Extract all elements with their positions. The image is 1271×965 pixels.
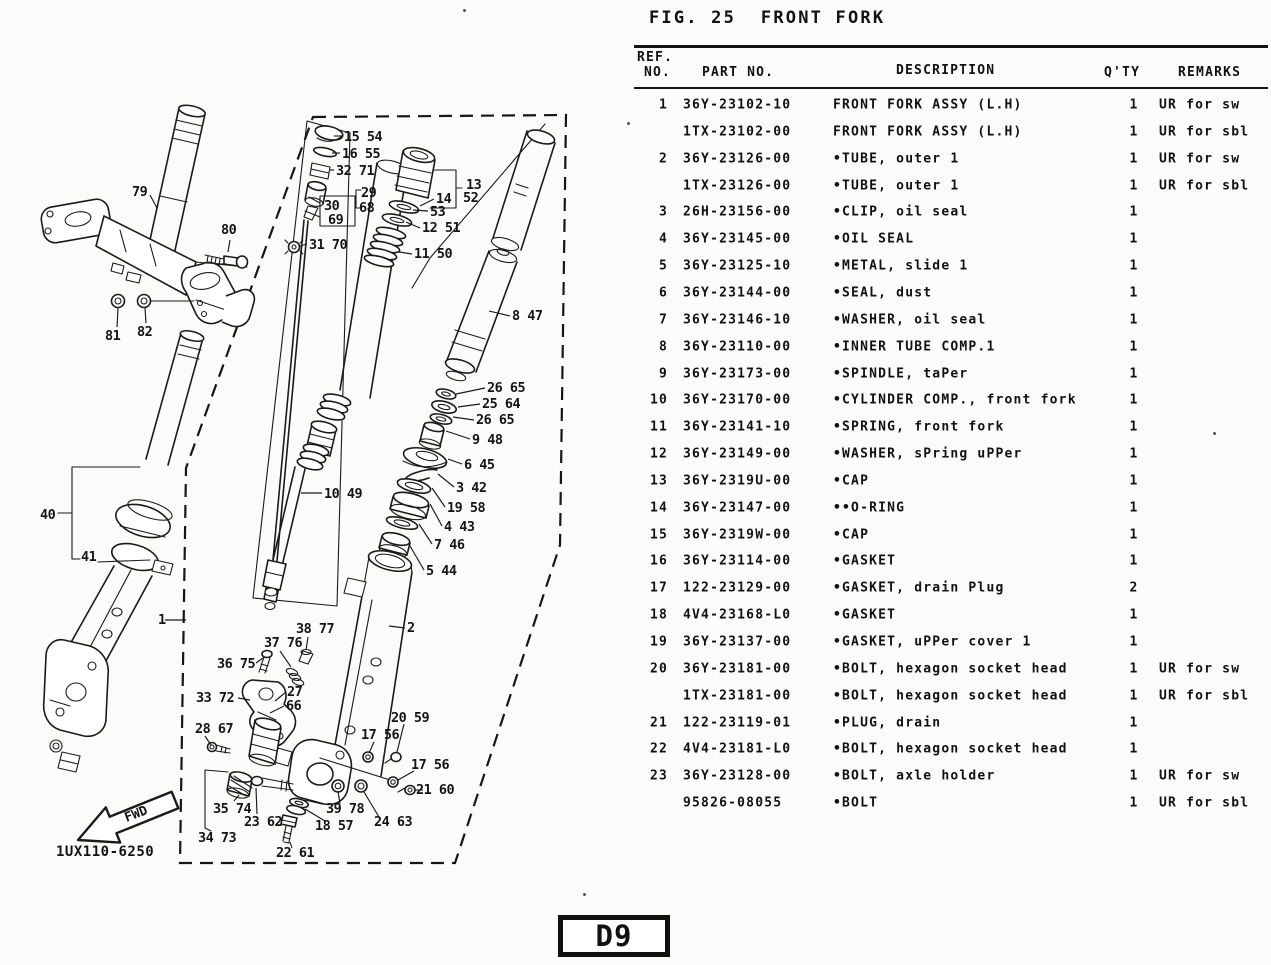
- part-callout-label: 24 63: [374, 814, 413, 830]
- parts-catalog-page: FWD 1UX110-6250 7980818215 5416 5532 712…: [0, 0, 1271, 965]
- part-callout-label: 40: [40, 507, 56, 523]
- part-no-cell: 122-23119-01: [683, 715, 791, 730]
- description-cell: •WASHER, oil seal: [833, 312, 986, 327]
- table-row: 736Y-23146-10•WASHER, oil seal1: [635, 306, 1268, 333]
- description-cell: •TUBE, outer 1: [833, 178, 959, 193]
- ref-no-cell: 7: [640, 312, 668, 327]
- part-no-cell: 95826-08055: [683, 796, 782, 811]
- description-cell: •BOLT: [833, 796, 878, 811]
- part-callout-label: 19 58: [447, 500, 486, 516]
- qty-cell: 1: [1124, 151, 1144, 166]
- part-callout-label: 32 71: [336, 163, 375, 179]
- callout-leader-line: [280, 651, 291, 667]
- scan-speck: [627, 122, 630, 125]
- callout-leader-line: [145, 308, 146, 323]
- table-row: 326H-23156-00•CLIP, oil seal1: [635, 199, 1268, 226]
- exploded-diagram: FWD 1UX110-6250 7980818215 5416 5532 712…: [0, 0, 640, 965]
- header-description: DESCRIPTION: [896, 63, 995, 78]
- ref-no-cell: 3: [640, 205, 668, 220]
- part-callout-label: 5 44: [426, 563, 457, 579]
- part-no-cell: 36Y-23145-00: [683, 232, 791, 247]
- callout-leader-line: [438, 474, 454, 487]
- table-row: 436Y-23145-00•OIL SEAL1: [635, 226, 1268, 253]
- description-cell: •GASKET, drain Plug: [833, 581, 1005, 596]
- qty-cell: 1: [1124, 312, 1144, 327]
- part-callout-label: 28 67: [195, 721, 234, 737]
- table-row: 536Y-23125-10•METAL, slide 11: [635, 253, 1268, 280]
- dashed-boundary: [180, 115, 566, 863]
- qty-cell: 1: [1124, 178, 1144, 193]
- description-cell: FRONT FORK ASSY (L.H): [833, 98, 1023, 113]
- part-no-cell: 36Y-23170-00: [683, 393, 791, 408]
- description-cell: •INNER TUBE COMP.1: [833, 339, 995, 354]
- ref-no-cell: 2: [640, 151, 668, 166]
- callout-leader-line: [489, 311, 510, 316]
- ref-no-cell: 21: [640, 715, 668, 730]
- qty-cell: 1: [1124, 796, 1144, 811]
- table-row: 1936Y-23137-00•GASKET, uPPer cover 11: [635, 629, 1268, 656]
- qty-cell: 1: [1124, 715, 1144, 730]
- qty-cell: 1: [1124, 527, 1144, 542]
- part-callout-label: 25 64: [482, 396, 521, 412]
- part-no-cell: 36Y-23114-00: [683, 554, 791, 569]
- header-ref-line2: NO.: [644, 65, 671, 80]
- part-callout-label: 10 49: [324, 486, 363, 502]
- part-callout-label: 31 70: [309, 237, 348, 253]
- part-callout-label: 2: [407, 620, 415, 636]
- table-row: 95826-08055•BOLT1UR for sbl: [635, 790, 1268, 817]
- callout-leader-line: [228, 240, 230, 252]
- scan-speck: [463, 9, 466, 12]
- part-callout-label: 34 73: [198, 830, 237, 846]
- callout-leader-line: [446, 431, 470, 439]
- part-no-cell: 36Y-23102-10: [683, 98, 791, 113]
- table-row: 1036Y-23170-00•CYLINDER COMP., front for…: [635, 387, 1268, 414]
- part-no-cell: 36Y-23128-00: [683, 769, 791, 784]
- part-no-cell: 36Y-23125-10: [683, 259, 791, 274]
- ref-no-cell: 1: [640, 98, 668, 113]
- ref-no-cell: 23: [640, 769, 668, 784]
- qty-cell: 1: [1124, 635, 1144, 650]
- page-code-box: D9: [558, 915, 670, 957]
- part-callout-label: 8 47: [512, 308, 543, 324]
- header-qty: Q'TY: [1104, 65, 1140, 80]
- ref-no-cell: 16: [640, 554, 668, 569]
- part-callout-label: 18 57: [315, 818, 354, 834]
- qty-cell: 1: [1124, 420, 1144, 435]
- qty-cell: 1: [1124, 661, 1144, 676]
- part-callout-label: 6 45: [464, 457, 495, 473]
- remarks-cell: UR for sw: [1159, 661, 1240, 676]
- table-row: 136Y-23102-10FRONT FORK ASSY (L.H)1UR fo…: [635, 92, 1268, 119]
- part-no-cell: 4V4-23168-L0: [683, 608, 791, 623]
- table-row: 236Y-23126-00•TUBE, outer 11UR for sw: [635, 145, 1268, 172]
- remarks-cell: UR for sw: [1159, 98, 1240, 113]
- ref-no-cell: 18: [640, 608, 668, 623]
- fwd-arrow: FWD: [78, 792, 178, 843]
- qty-cell: 1: [1124, 500, 1144, 515]
- callout-leader-line: [453, 417, 474, 420]
- part-callout-label: 7 46: [434, 537, 465, 553]
- part-callout-label: 35 74: [213, 801, 252, 817]
- part-callout-label: 68: [359, 200, 375, 216]
- description-cell: •TUBE, outer 1: [833, 151, 959, 166]
- ref-no-cell: 22: [640, 742, 668, 757]
- qty-cell: 1: [1124, 447, 1144, 462]
- callout-leader-line: [150, 195, 157, 208]
- part-no-cell: 1TX-23181-00: [683, 688, 791, 703]
- part-callout-label: 3 42: [456, 480, 487, 496]
- ref-no-cell: 17: [640, 581, 668, 596]
- description-cell: •SEAL, dust: [833, 285, 932, 300]
- table-row: 21122-23119-01•PLUG, drain1: [635, 709, 1268, 736]
- callout-leader-line: [369, 742, 374, 753]
- table-row: 224V4-23181-L0•BOLT, hexagon socket head…: [635, 736, 1268, 763]
- description-cell: •SPINDLE, taPer: [833, 366, 968, 381]
- table-row: 2336Y-23128-00•BOLT, axle holder1UR for …: [635, 763, 1268, 790]
- part-no-cell: 26H-23156-00: [683, 205, 791, 220]
- callout-leader-line: [399, 252, 412, 254]
- part-no-cell: 1TX-23126-00: [683, 178, 791, 193]
- part-callout-label: 17 56: [361, 727, 400, 743]
- description-cell: •GASKET: [833, 554, 896, 569]
- qty-cell: 1: [1124, 473, 1144, 488]
- qty-cell: 1: [1124, 554, 1144, 569]
- table-top-rule: [634, 45, 1268, 48]
- callout-leader-line: [256, 788, 257, 814]
- ref-no-cell: 8: [640, 339, 668, 354]
- scan-speck: [1213, 432, 1216, 435]
- part-callout-label: 29: [361, 185, 377, 201]
- description-cell: •METAL, slide 1: [833, 259, 968, 274]
- remarks-cell: UR for sbl: [1159, 796, 1249, 811]
- qty-cell: 1: [1124, 285, 1144, 300]
- qty-cell: 1: [1124, 393, 1144, 408]
- part-callout-label: 4 43: [444, 519, 475, 535]
- ref-no-cell: 6: [640, 285, 668, 300]
- ref-no-cell: 14: [640, 500, 668, 515]
- table-row: 1236Y-23149-00•WASHER, sPring uPPer1: [635, 441, 1268, 468]
- part-callout-label: 52: [463, 190, 478, 206]
- part-no-cell: 36Y-23137-00: [683, 635, 791, 650]
- description-cell: ••O-RING: [833, 500, 905, 515]
- callout-leader-line: [306, 637, 308, 650]
- ref-no-cell: 13: [640, 473, 668, 488]
- header-part-no: PART NO.: [702, 65, 774, 80]
- part-callout-label: 21 60: [416, 782, 455, 798]
- description-cell: •CAP: [833, 473, 869, 488]
- table-row: 936Y-23173-00•SPINDLE, taPer1: [635, 360, 1268, 387]
- part-no-cell: 4V4-23181-L0: [683, 742, 791, 757]
- table-row: 184V4-23168-L0•GASKET1: [635, 602, 1268, 629]
- part-callout-label: 22 61: [276, 845, 315, 861]
- table-row: 1TX-23102-00FRONT FORK ASSY (L.H)1UR for…: [635, 118, 1268, 145]
- table-row: 836Y-23110-00•INNER TUBE COMP.11: [635, 333, 1268, 360]
- table-row: 1436Y-23147-00••O-RING1: [635, 494, 1268, 521]
- damper-rod-parts: [264, 124, 344, 610]
- remarks-cell: UR for sw: [1159, 769, 1240, 784]
- ref-no-cell: 19: [640, 635, 668, 650]
- part-no-cell: 36Y-2319U-00: [683, 473, 791, 488]
- part-callout-label: 16 55: [342, 146, 381, 162]
- part-callout-label: 39 78: [326, 801, 365, 817]
- qty-cell: 1: [1124, 366, 1144, 381]
- ref-no-cell: 5: [640, 259, 668, 274]
- description-cell: •OIL SEAL: [833, 232, 914, 247]
- qty-cell: 1: [1124, 259, 1144, 274]
- description-cell: •GASKET, uPPer cover 1: [833, 635, 1032, 650]
- part-callout-label: 37 76: [264, 635, 303, 651]
- callout-leader-line: [448, 459, 462, 464]
- part-no-cell: 36Y-23141-10: [683, 420, 791, 435]
- ref-no-cell: 10: [640, 393, 668, 408]
- part-callout-label: 33 72: [196, 690, 234, 706]
- part-no-cell: 36Y-23173-00: [683, 366, 791, 381]
- part-callout-label: 1: [158, 612, 166, 628]
- header-remarks: REMARKS: [1178, 65, 1241, 80]
- qty-cell: 1: [1124, 742, 1144, 757]
- description-cell: •BOLT, axle holder: [833, 769, 995, 784]
- callout-leader-line: [456, 388, 485, 394]
- part-no-cell: 36Y-23181-00: [683, 661, 791, 676]
- left-fork-leg: [44, 329, 205, 772]
- description-cell: •CAP: [833, 527, 869, 542]
- diagram-code: 1UX110-6250: [56, 844, 154, 860]
- description-cell: •BOLT, hexagon socket head: [833, 688, 1068, 703]
- ref-no-cell: 12: [640, 447, 668, 462]
- part-callout-label: 9 48: [472, 432, 503, 448]
- qty-cell: 1: [1124, 608, 1144, 623]
- table-row: 1636Y-23114-00•GASKET1: [635, 548, 1268, 575]
- part-callout-label: 17 56: [411, 757, 450, 773]
- qty-cell: 1: [1124, 688, 1144, 703]
- table-row: 1536Y-2319W-00•CAP1: [635, 521, 1268, 548]
- qty-cell: 1: [1124, 98, 1144, 113]
- inner-tube: [444, 127, 556, 382]
- callout-leader-line: [430, 504, 442, 526]
- scan-speck: [583, 893, 586, 896]
- description-cell: •BOLT, hexagon socket head: [833, 742, 1068, 757]
- header-ref-line1: REF.: [637, 50, 673, 65]
- part-callout-label: 79: [132, 184, 148, 200]
- part-callout-label: 26 65: [476, 412, 515, 428]
- figure-title: FIG. 25 FRONT FORK: [649, 8, 885, 28]
- part-no-cell: 36Y-23126-00: [683, 151, 791, 166]
- table-row: 1136Y-23141-10•SPRING, front fork1: [635, 414, 1268, 441]
- page-code: D9: [596, 922, 633, 951]
- callout-leader-line: [432, 488, 445, 507]
- callout-leader-line: [419, 524, 432, 544]
- part-callout-label: 20 59: [391, 710, 430, 726]
- callout-leader-line: [389, 626, 405, 628]
- remarks-cell: UR for sbl: [1159, 124, 1249, 139]
- ref-no-cell: 11: [640, 420, 668, 435]
- part-no-cell: 36Y-23144-00: [683, 285, 791, 300]
- part-no-cell: 122-23129-00: [683, 581, 791, 596]
- remarks-cell: UR for sbl: [1159, 688, 1249, 703]
- steering-stem-assembly: [39, 103, 254, 326]
- inner-frame: [253, 121, 350, 606]
- description-cell: FRONT FORK ASSY (L.H): [833, 124, 1023, 139]
- part-callout-label: 11 50: [414, 246, 453, 262]
- remarks-cell: UR for sw: [1159, 151, 1240, 166]
- table-row: 636Y-23144-00•SEAL, dust1: [635, 279, 1268, 306]
- description-cell: •WASHER, sPring uPPer: [833, 447, 1023, 462]
- part-callout-label: 53: [430, 204, 446, 220]
- description-cell: •CYLINDER COMP., front fork: [833, 393, 1077, 408]
- part-no-cell: 1TX-23102-00: [683, 124, 791, 139]
- description-cell: •PLUG, drain: [833, 715, 941, 730]
- table-row: 1TX-23126-00•TUBE, outer 11UR for sbl: [635, 172, 1268, 199]
- part-callout-label: 80: [221, 222, 237, 238]
- part-callout-label: 26 65: [487, 380, 526, 396]
- part-callout-label: 69: [328, 212, 344, 228]
- part-callout-label: 15 54: [344, 129, 383, 145]
- part-no-cell: 36Y-23149-00: [683, 447, 791, 462]
- description-cell: •SPRING, front fork: [833, 420, 1005, 435]
- callout-leader-line: [117, 308, 118, 327]
- table-row: 17122-23129-00•GASKET, drain Plug2: [635, 575, 1268, 602]
- part-no-cell: 36Y-2319W-00: [683, 527, 791, 542]
- part-no-cell: 36Y-23146-10: [683, 312, 791, 327]
- qty-cell: 1: [1124, 769, 1144, 784]
- description-cell: •BOLT, hexagon socket head: [833, 661, 1068, 676]
- part-callout-label: 81: [105, 328, 121, 344]
- table-header-rule: [634, 87, 1268, 89]
- qty-cell: 1: [1124, 339, 1144, 354]
- callout-leader-line: [458, 404, 480, 407]
- table-row: 1TX-23181-00•BOLT, hexagon socket head1U…: [635, 682, 1268, 709]
- part-callout-label: 82: [137, 324, 152, 340]
- part-no-cell: 36Y-23147-00: [683, 500, 791, 515]
- qty-cell: 1: [1124, 124, 1144, 139]
- table-row: 2036Y-23181-00•BOLT, hexagon socket head…: [635, 655, 1268, 682]
- description-cell: •CLIP, oil seal: [833, 205, 968, 220]
- ref-no-cell: 9: [640, 366, 668, 381]
- table-row: 1336Y-2319U-00•CAP1: [635, 467, 1268, 494]
- part-no-cell: 36Y-23110-00: [683, 339, 791, 354]
- qty-cell: 1: [1124, 205, 1144, 220]
- part-callout-label: 36 75: [217, 656, 256, 672]
- ref-no-cell: 15: [640, 527, 668, 542]
- description-cell: •GASKET: [833, 608, 896, 623]
- remarks-cell: UR for sbl: [1159, 178, 1249, 193]
- qty-cell: 1: [1124, 232, 1144, 247]
- part-callout-label: 12 51: [422, 220, 461, 236]
- qty-cell: 2: [1124, 581, 1144, 596]
- ref-no-cell: 20: [640, 661, 668, 676]
- ref-no-cell: 4: [640, 232, 668, 247]
- part-callout-label: 66: [286, 698, 302, 714]
- part-callout-label: 41: [81, 549, 97, 565]
